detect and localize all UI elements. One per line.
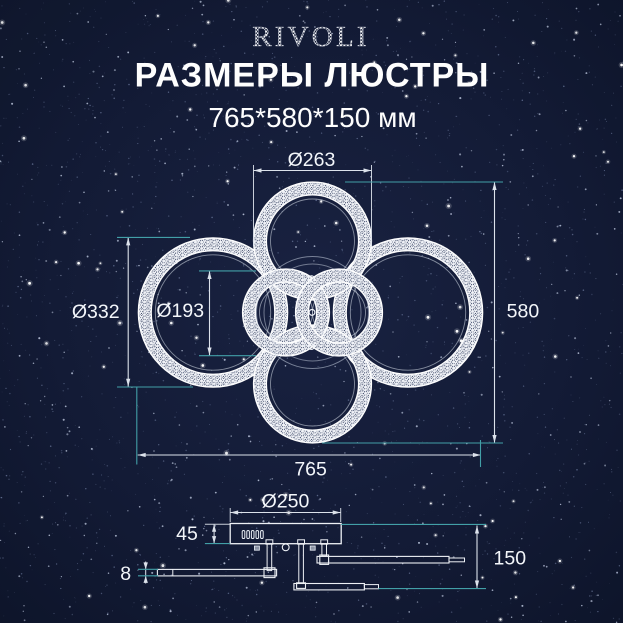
svg-text:RIVOLI: RIVOLI: [252, 21, 369, 53]
svg-text:Ø263: Ø263: [288, 149, 336, 171]
svg-text:8: 8: [120, 563, 131, 585]
svg-text:Ø193: Ø193: [156, 300, 204, 322]
svg-text:150: 150: [494, 548, 527, 570]
svg-text:45: 45: [176, 523, 198, 545]
svg-text:Ø332: Ø332: [72, 301, 120, 323]
svg-text:765: 765: [294, 459, 327, 481]
svg-text:РАЗМЕРЫ ЛЮСТРЫ: РАЗМЕРЫ ЛЮСТРЫ: [135, 57, 490, 95]
svg-text:580: 580: [507, 301, 540, 323]
svg-text:Ø250: Ø250: [262, 491, 310, 513]
svg-text:765*580*150 мм: 765*580*150 мм: [208, 102, 416, 133]
